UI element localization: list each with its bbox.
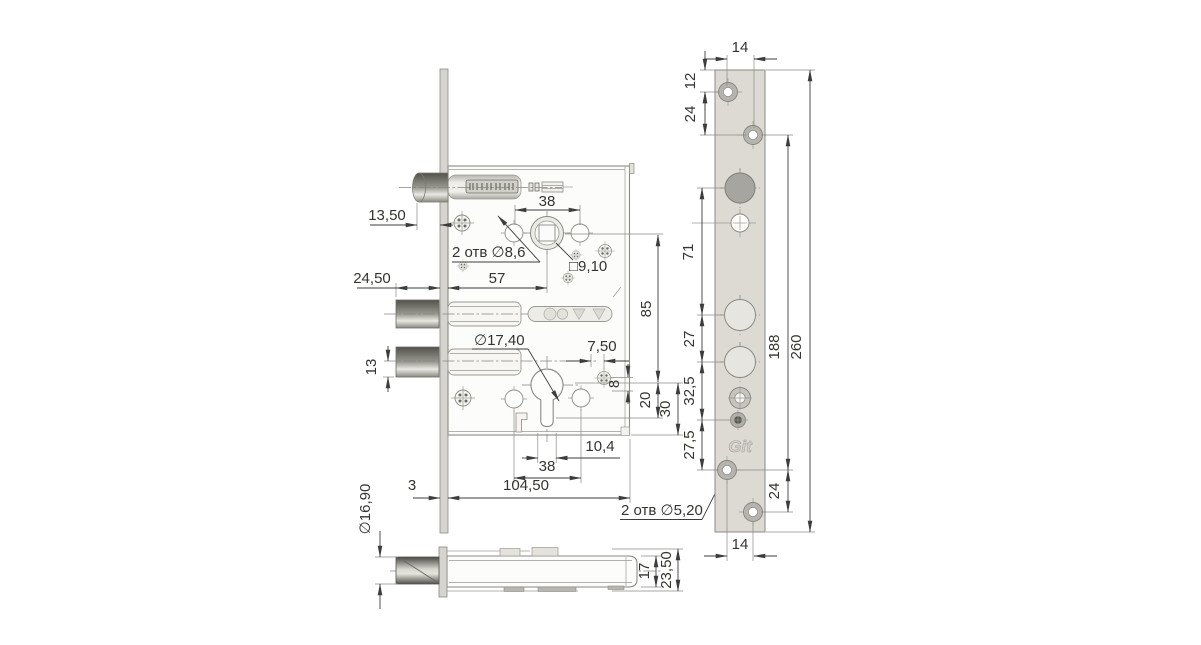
- dim-deadbolt-center: 13: [363, 359, 380, 376]
- technical-drawing-page: 13,50 38 2 отв ∅8,6 □9,10 24,50 57 85 ∅1…: [0, 0, 1201, 645]
- dim-follower-square: □9,10: [569, 258, 607, 275]
- dim-screw-drop: 8: [606, 380, 623, 388]
- guide-slot: [528, 307, 612, 322]
- dim-follower-to-cylinder: 85: [638, 301, 655, 318]
- dim-fp-offset-bottom: 14: [732, 536, 749, 553]
- dim-fp-bottom-gap: 27,5: [681, 430, 698, 459]
- dim-fp-edge-to-hole: 12: [682, 73, 699, 90]
- dim-body-length: 104,50: [503, 477, 549, 494]
- dim-screw-offset: 7,50: [587, 338, 616, 355]
- dim-faceplate-thickness: 3: [408, 477, 416, 494]
- note-faceplate-holes: 2 отв ∅5,20: [621, 502, 703, 519]
- dim-backset: 57: [489, 270, 506, 287]
- dim-cylinder-dia: ∅17,40: [474, 332, 525, 349]
- dim-latch-protrusion: 13,50: [368, 207, 406, 224]
- faceplate-view: Git: [680, 39, 815, 561]
- dim-overall-thickness: 23,50: [658, 551, 675, 589]
- deadbolt-end: [396, 557, 439, 584]
- note-upper-holes: 2 отв ∅8,6: [452, 244, 525, 261]
- dim-fp-plate-length: 260: [788, 334, 805, 359]
- dim-keyway-depth: 20: [637, 392, 654, 409]
- dim-fp-top-pair: 24: [682, 106, 699, 123]
- dim-deadbolt-dia: ∅16,90: [357, 484, 374, 535]
- dim-keyway-width: 10,4: [585, 438, 614, 455]
- dim-upper-holes-spacing: 38: [539, 193, 556, 210]
- dim-cylinder-to-bottom: 30: [657, 401, 674, 418]
- dim-fp-latch-spindle: 71: [680, 244, 697, 261]
- dim-fp-lower-gap: 32,5: [681, 376, 698, 405]
- faceplate-edge-strip: [440, 69, 448, 533]
- dim-fp-offset-top: 14: [732, 39, 749, 56]
- brand-logo: Git: [728, 437, 753, 456]
- lock-drawing: 13,50 38 2 отв ∅8,6 □9,10 24,50 57 85 ∅1…: [0, 0, 1201, 645]
- faceplate-edge-bottom: [439, 547, 447, 597]
- dim-case-thickness: 17: [636, 563, 653, 580]
- dim-fp-mounting-span: 188: [766, 334, 783, 359]
- dim-fp-spindle-pair: 27: [681, 331, 698, 348]
- dim-lower-holes-spacing: 38: [539, 458, 556, 475]
- front-view: 13,50 38 2 отв ∅8,6 □9,10 24,50 57 85 ∅1…: [353, 69, 725, 533]
- dim-deadbolt-throw: 24,50: [353, 270, 391, 287]
- dim-fp-bottom-pair: 24: [766, 483, 783, 500]
